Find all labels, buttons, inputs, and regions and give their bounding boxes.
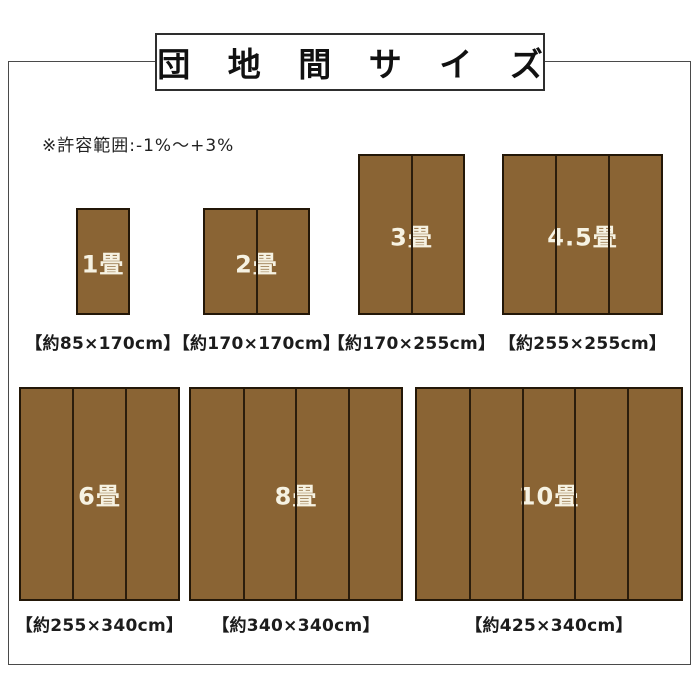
tolerance-note: ※許容範囲:-1%～+3% bbox=[42, 131, 234, 156]
rug-tatami-count-label: 1畳 bbox=[82, 244, 125, 279]
rug-size-label: 【約425×340cm】 bbox=[465, 611, 633, 636]
rug-tatami-count-label: 6畳 bbox=[78, 477, 121, 512]
title-box: 団 地 間 サ イ ズ bbox=[155, 33, 545, 91]
rug-8jo: 8畳 bbox=[189, 387, 403, 601]
panel-divider bbox=[555, 156, 557, 313]
panel-divider bbox=[608, 156, 610, 313]
panel-divider bbox=[627, 389, 629, 599]
rug-4-5jo: 4.5畳 bbox=[502, 154, 663, 315]
panel-divider bbox=[72, 389, 74, 599]
panel-divider bbox=[411, 156, 413, 313]
panel-divider bbox=[469, 389, 471, 599]
page-title: 団 地 間 サ イ ズ bbox=[144, 38, 555, 86]
panel-divider bbox=[348, 389, 350, 599]
rug-size-label: 【約255×255cm】 bbox=[499, 329, 667, 354]
panel-divider bbox=[125, 389, 127, 599]
rug-6jo: 6畳 bbox=[19, 387, 180, 601]
panel-divider bbox=[243, 389, 245, 599]
rug-size-label: 【約170×170cm】 bbox=[173, 329, 341, 354]
rug-size-label: 【約255×340cm】 bbox=[16, 611, 184, 636]
size-chart-canvas: 団 地 間 サ イ ズ ※許容範囲:-1%～+3% 1畳 【約85×170cm】… bbox=[0, 0, 700, 700]
panel-divider bbox=[295, 389, 297, 599]
rug-size-label: 【約170×255cm】 bbox=[328, 329, 496, 354]
rug-tatami-count-label: 10畳 bbox=[519, 477, 579, 512]
rug-3jo: 3畳 bbox=[358, 154, 465, 315]
rug-1jo: 1畳 bbox=[76, 208, 130, 315]
rug-2jo: 2畳 bbox=[203, 208, 310, 315]
panel-divider bbox=[256, 210, 258, 313]
panel-divider bbox=[522, 389, 524, 599]
rug-size-label: 【約340×340cm】 bbox=[212, 611, 380, 636]
panel-divider bbox=[574, 389, 576, 599]
rug-size-label: 【約85×170cm】 bbox=[25, 329, 180, 354]
rug-10jo: 10畳 bbox=[415, 387, 683, 601]
